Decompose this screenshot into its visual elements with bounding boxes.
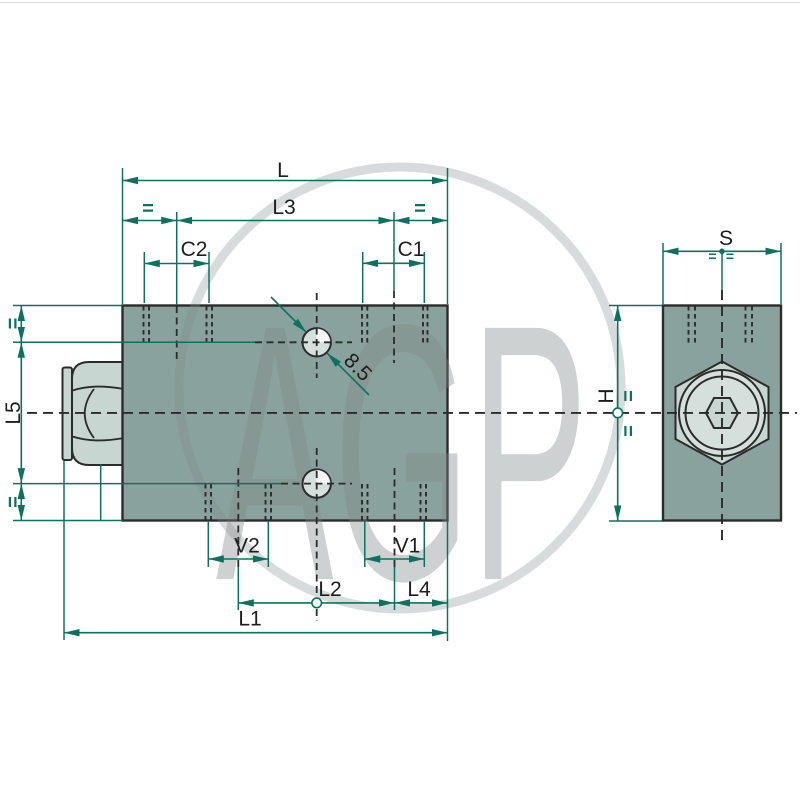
valve-block-dimension-drawing: AGP [0,0,800,800]
label-equal-top-left: = [142,198,154,220]
label-equal-left-lower: = [1,496,23,508]
label-V2: V2 [234,535,260,558]
label-C1: C1 [398,238,425,261]
label-C2: C2 [181,238,208,261]
label-L5: L5 [2,401,25,424]
label-equal-left-upper: = [1,318,23,330]
label-equal-s-right: = [726,248,734,264]
label-L3: L3 [272,196,295,219]
label-L2: L2 [318,578,341,601]
label-equal-h-lower: = [616,425,638,437]
technical-drawing-page: AGP [0,0,800,800]
label-S: S [719,227,733,250]
watermark-text: AGP [216,250,588,657]
label-H: H [595,388,618,403]
label-V1: V1 [395,535,421,558]
label-L: L [277,159,289,182]
label-equal-top-right: = [414,198,426,220]
label-equal-s-left: = [708,248,716,264]
label-L1: L1 [238,608,261,631]
label-equal-h-upper: = [616,390,638,402]
label-L4: L4 [407,578,431,601]
dim-H-center-marker [613,408,623,418]
